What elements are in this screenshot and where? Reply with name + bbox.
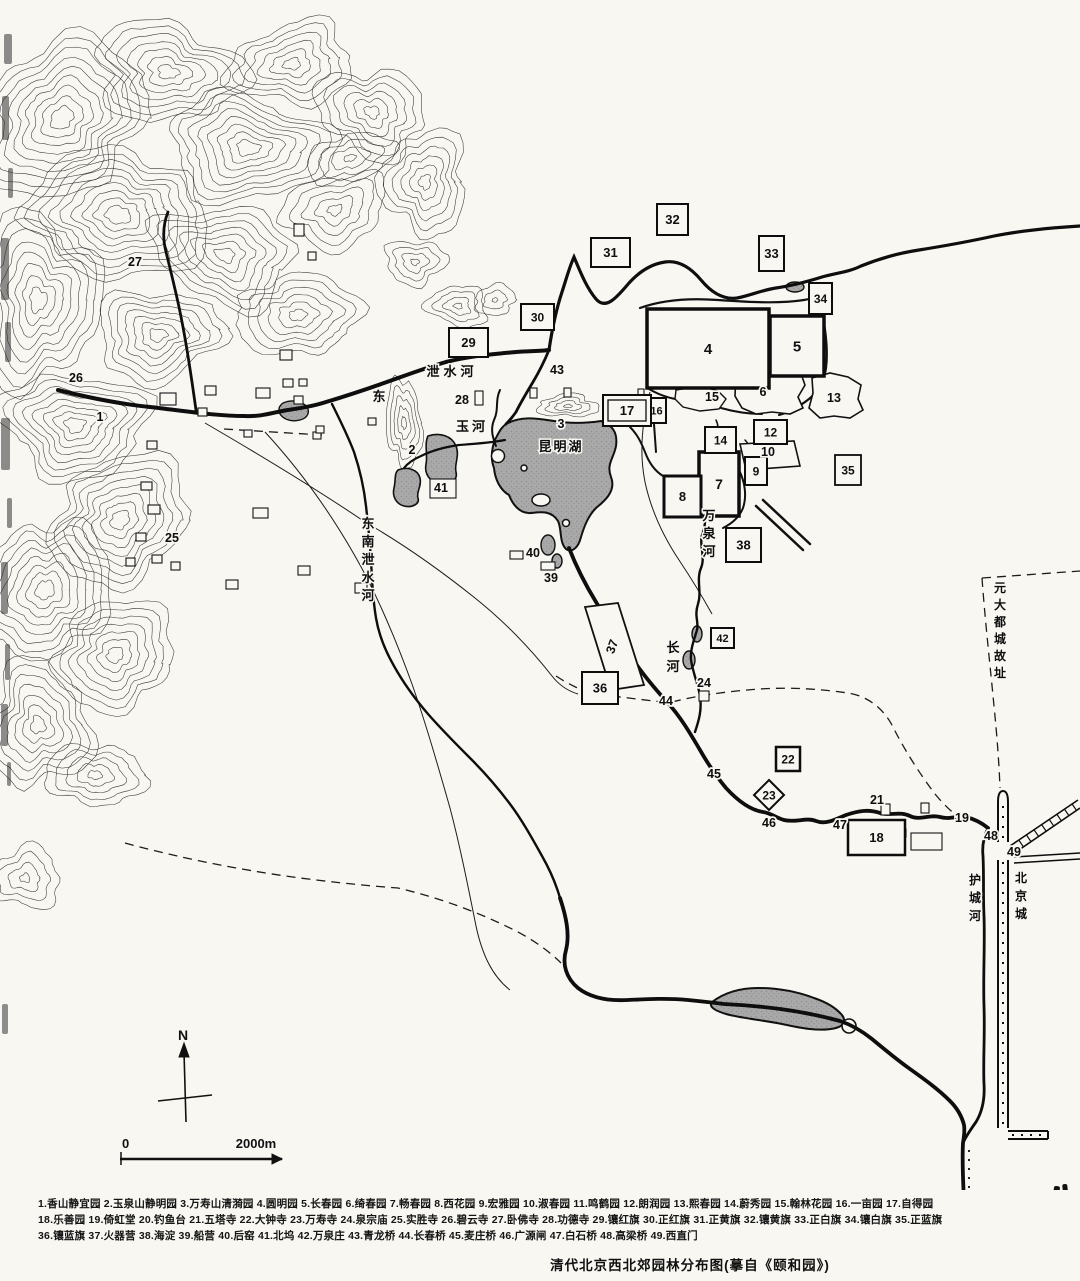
marker-box-7: 7 — [699, 452, 739, 516]
area-label: 东南泄水河 — [361, 516, 375, 603]
area-label: 昆明湖 — [538, 439, 583, 454]
city-wall — [969, 791, 1080, 1190]
svg-text:12: 12 — [764, 425, 778, 439]
marker-box-4: 4 — [647, 309, 769, 388]
marker-box-5: 5 — [770, 316, 824, 376]
svg-text:23: 23 — [762, 788, 776, 802]
marker-label-13: 13 — [827, 391, 841, 405]
svg-text:42: 42 — [716, 633, 728, 645]
hill-stream — [164, 212, 196, 410]
svg-text:33: 33 — [764, 246, 778, 261]
compass-arrowhead — [179, 1043, 189, 1057]
marker-box-17: 17 — [603, 395, 651, 426]
marker-box-9: 9 — [745, 457, 767, 485]
compass: N — [158, 1027, 212, 1122]
legend-row-2: 18.乐善园 19.倚虹堂 20.钓鱼台 21.五塔寺 22.大钟寺 23.万寿… — [38, 1212, 1068, 1228]
south-river — [560, 898, 964, 1190]
scale-bar: 0 2000m — [120, 1136, 282, 1165]
marker-label-25: 25 — [165, 531, 179, 545]
marker-label-10: 10 — [761, 445, 775, 459]
west-pond-2 — [393, 468, 420, 506]
svg-text:30: 30 — [531, 310, 545, 324]
marker-box-22: 22 — [776, 747, 800, 771]
scale-start-label: 0 — [122, 1136, 129, 1151]
map-title: 清代北京西北郊园林分布图(摹自《颐和园》) — [300, 1254, 1080, 1274]
marker-label-21: 21 — [870, 793, 884, 807]
marker-box-42: 42 — [711, 628, 734, 648]
area-label: 长河 — [666, 640, 680, 674]
marker-box-32: 32 — [657, 204, 688, 235]
aqueduct — [763, 500, 810, 544]
dock-pond-1 — [541, 535, 555, 555]
marker-label-41: 41 — [434, 481, 448, 495]
area-label: 元大都城故址 — [993, 581, 1007, 680]
marker-box-18: 18 — [848, 820, 905, 855]
marker-label-2: 2 — [409, 443, 416, 457]
marker-label-24: 24 — [697, 676, 711, 690]
svg-text:34: 34 — [814, 292, 828, 306]
legend: 1.香山静宜园 2.玉泉山静明园 3.万寿山清漪园 4.圆明园 5.长春园 6.… — [38, 1196, 1068, 1244]
west-pond-1 — [426, 434, 458, 484]
qinglongqiao-channel — [506, 350, 549, 424]
marker-box-34: 34 — [809, 283, 832, 314]
svg-text:35: 35 — [841, 463, 855, 477]
marker-label-1: 1 — [97, 410, 104, 424]
marker-label-15: 15 — [705, 390, 719, 404]
scale-end-label: 2000m — [236, 1136, 276, 1151]
scan-artifacts — [1, 34, 13, 1034]
marker-diamond-23: 23 — [754, 780, 784, 810]
marker-label-6: 6 — [760, 385, 767, 399]
roads-thin — [205, 392, 712, 990]
legend-row-3: 36.镶蓝旗 37.火器营 38.海淀 39.船营 40.后窑 41.北坞 42… — [38, 1228, 1068, 1244]
svg-text:5: 5 — [793, 338, 801, 355]
compass-n-label: N — [178, 1027, 188, 1043]
svg-text:16: 16 — [650, 405, 662, 417]
area-label: 东 — [372, 389, 385, 404]
marker-label-28: 28 — [455, 393, 469, 407]
svg-text:17: 17 — [620, 403, 634, 418]
marker-label-49: 49 — [1007, 845, 1021, 859]
svg-text:14: 14 — [714, 433, 728, 447]
marker-box-36: 36 — [582, 672, 618, 704]
svg-text:22: 22 — [781, 752, 795, 766]
marker-label-44: 44 — [659, 694, 673, 708]
aqueduct — [756, 506, 803, 550]
marker-label-45: 45 — [707, 767, 721, 781]
marker-label-43: 43 — [550, 363, 564, 377]
marker-label-39: 39 — [544, 571, 558, 585]
area-label: 万泉河 — [701, 508, 716, 559]
marker-label-48: 48 — [984, 829, 998, 843]
marker-label-3: 3 — [558, 417, 565, 431]
area-label: 泄水河 — [426, 364, 477, 379]
marker-box-29: 29 — [449, 328, 488, 357]
area-label: 北京城 — [1015, 870, 1027, 921]
svg-text:38: 38 — [736, 538, 750, 553]
area-label: 玉河 — [456, 419, 488, 434]
svg-text:8: 8 — [679, 489, 686, 504]
marker-label-19: 19 — [955, 811, 969, 825]
marker-box-8: 8 — [664, 476, 701, 517]
marker-label-27: 27 — [128, 255, 142, 269]
marker-label-40: 40 — [526, 546, 540, 560]
marker-box-33: 33 — [759, 236, 784, 271]
marker-label-46: 46 — [762, 816, 776, 830]
svg-text:36: 36 — [593, 681, 607, 696]
svg-text:4: 4 — [704, 341, 713, 358]
svg-text:31: 31 — [603, 245, 617, 260]
svg-text:32: 32 — [665, 212, 679, 227]
marker-box-30: 30 — [521, 304, 554, 330]
rivers — [58, 212, 1080, 1190]
marker-label-26: 26 — [69, 371, 83, 385]
marker-box-31: 31 — [591, 238, 630, 267]
svg-text:18: 18 — [869, 830, 883, 845]
binding-marks — [1050, 1184, 1071, 1190]
marker-label-47: 47 — [833, 818, 847, 832]
marker-box-12: 12 — [754, 420, 787, 444]
legend-row-1: 1.香山静宜园 2.玉泉山静明园 3.万寿山清漪园 4.圆明园 5.长春园 6.… — [38, 1196, 1068, 1212]
map-page: 457891214161718222930313233343536384223 … — [0, 0, 1080, 1281]
area-label: 护城河 — [968, 872, 981, 923]
svg-text:29: 29 — [461, 335, 475, 350]
marker-box-38: 38 — [726, 528, 761, 562]
svg-text:9: 9 — [753, 464, 760, 478]
marker-box-14: 14 — [705, 427, 736, 453]
marker-box-35: 35 — [835, 455, 861, 485]
map-canvas: 457891214161718222930313233343536384223 … — [0, 0, 1080, 1190]
svg-text:7: 7 — [715, 476, 723, 492]
